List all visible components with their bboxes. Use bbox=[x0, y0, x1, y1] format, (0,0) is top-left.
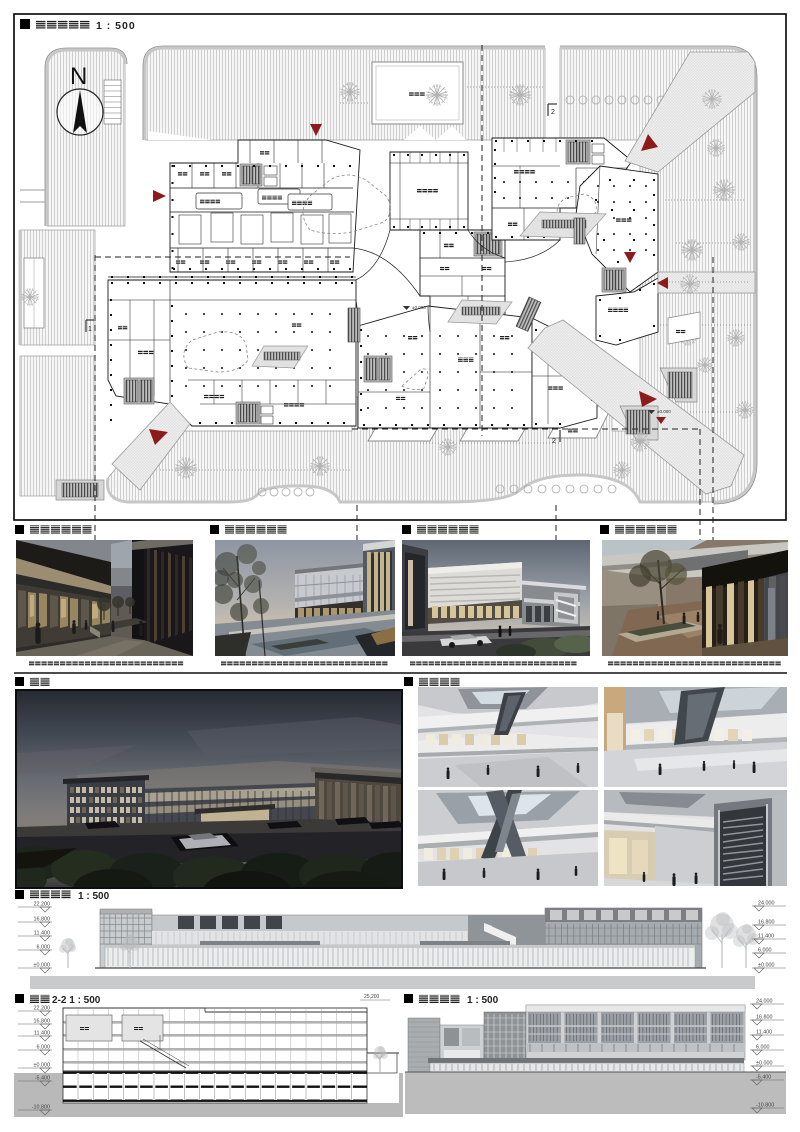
svg-text:-5.400: -5.400 bbox=[756, 1075, 771, 1081]
svg-text:2-2 1 : 500: 2-2 1 : 500 bbox=[52, 995, 101, 1006]
svg-text:±0.000: ±0.000 bbox=[34, 963, 50, 969]
svg-text:±0.000: ±0.000 bbox=[34, 1063, 50, 1069]
svg-text:6.000: 6.000 bbox=[758, 948, 772, 954]
svg-text:±0.000: ±0.000 bbox=[657, 409, 671, 414]
svg-text:N: N bbox=[70, 63, 87, 90]
svg-text:2: 2 bbox=[551, 109, 555, 116]
svg-text:11.400: 11.400 bbox=[34, 931, 50, 937]
svg-text:16.800: 16.800 bbox=[756, 1015, 773, 1021]
svg-text:±0.000: ±0.000 bbox=[412, 305, 426, 310]
svg-text:-5.400: -5.400 bbox=[35, 1076, 50, 1082]
svg-text:25,200: 25,200 bbox=[364, 994, 380, 1000]
svg-text:6.000: 6.000 bbox=[37, 945, 51, 951]
svg-text:-10.800: -10.800 bbox=[756, 1103, 774, 1109]
svg-text:2: 2 bbox=[552, 438, 556, 445]
svg-text:1 : 500: 1 : 500 bbox=[78, 891, 110, 902]
svg-text:6.000: 6.000 bbox=[37, 1045, 51, 1051]
svg-text:6.000: 6.000 bbox=[756, 1045, 770, 1051]
svg-text:11.400: 11.400 bbox=[756, 1030, 772, 1036]
svg-text:1 : 500: 1 : 500 bbox=[96, 20, 136, 32]
svg-text:24.000: 24.000 bbox=[758, 901, 775, 907]
svg-text:16.800: 16.800 bbox=[34, 1019, 51, 1025]
svg-text:22.200: 22.200 bbox=[34, 902, 51, 908]
svg-text:±0.000: ±0.000 bbox=[758, 963, 774, 969]
svg-text:22.200: 22.200 bbox=[34, 1006, 51, 1012]
svg-text:16.800: 16.800 bbox=[758, 920, 775, 926]
svg-text:11.400: 11.400 bbox=[758, 934, 774, 940]
svg-text:±0.000: ±0.000 bbox=[756, 1061, 772, 1067]
svg-text:1: 1 bbox=[88, 326, 92, 333]
svg-text:1 : 500: 1 : 500 bbox=[467, 995, 499, 1006]
svg-text:11.400: 11.400 bbox=[34, 1031, 50, 1037]
svg-text:24.000: 24.000 bbox=[756, 999, 773, 1005]
svg-text:16.800: 16.800 bbox=[34, 917, 51, 923]
svg-text:-10.800: -10.800 bbox=[32, 1105, 50, 1111]
